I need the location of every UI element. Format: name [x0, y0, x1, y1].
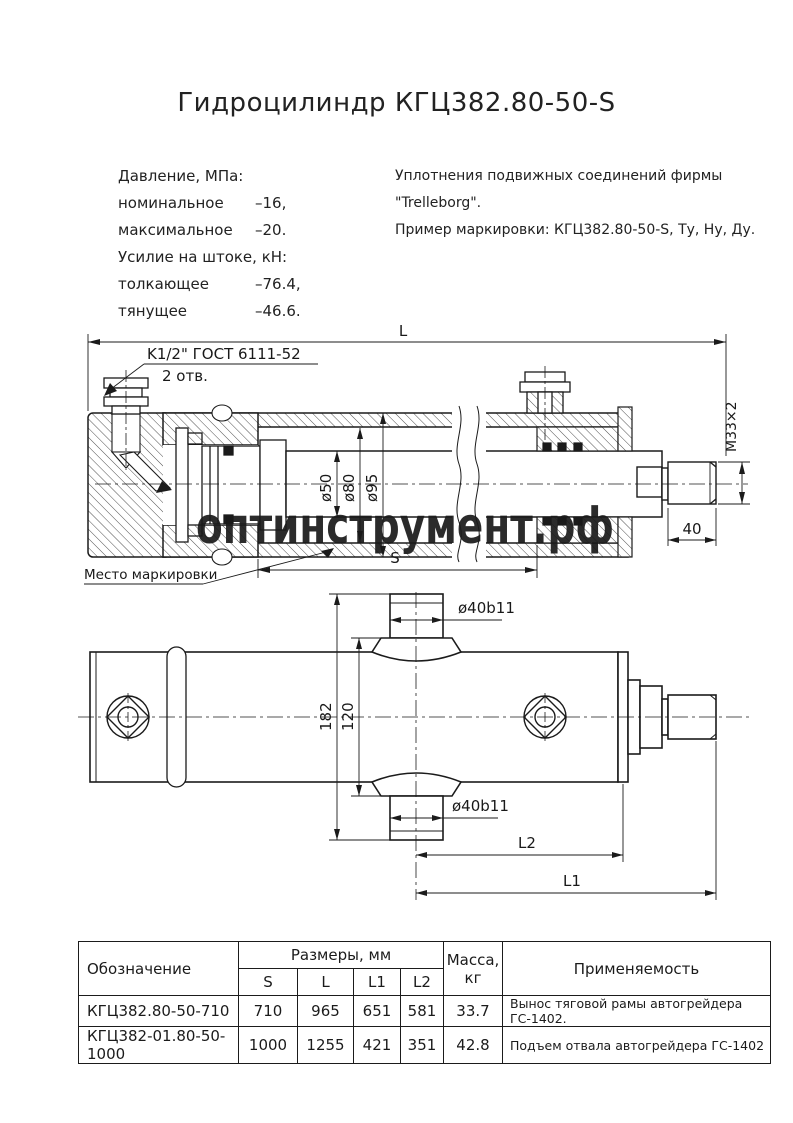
cell-s: 1000: [239, 1027, 298, 1064]
col-header-S: S: [239, 969, 298, 996]
cell-l: 965: [298, 996, 354, 1027]
col-header-mass: Масса, кг: [444, 942, 503, 996]
dim-label-thread: М33×2: [724, 401, 740, 452]
drawing-outline-view: ø40b11 ø40b11 182 12: [78, 592, 752, 900]
datasheet-page: Гидроцилиндр КГЦ382.80-50-S Давление, МП…: [0, 0, 793, 1123]
col-header-L2: L2: [401, 969, 444, 996]
table-row: КГЦ382-01.80-50-1000 1000 1255 421 351 4…: [79, 1027, 771, 1064]
cell-designation: КГЦ382-01.80-50-1000: [79, 1027, 239, 1064]
cell-l: 1255: [298, 1027, 354, 1064]
col-header-dimensions: Размеры, мм: [239, 942, 444, 969]
port-holes-label: 2 отв.: [162, 367, 208, 385]
col-header-L1: L1: [354, 969, 401, 996]
col-header-L: L: [298, 969, 354, 996]
trunnion-bottom: [372, 773, 461, 840]
dim-label-L1: L1: [563, 872, 581, 890]
cell-mass: 33.7: [444, 996, 503, 1027]
cell-application: Вынос тяговой рамы автогрейдера ГС-1402.: [503, 996, 771, 1027]
dim-label-L2: L2: [518, 834, 536, 852]
cell-l1: 651: [354, 996, 401, 1027]
dim-label-182: 182: [317, 702, 335, 731]
cell-l2: 351: [401, 1027, 444, 1064]
marking-place-label: Место маркировки: [84, 567, 217, 583]
cell-l2: 581: [401, 996, 444, 1027]
trunnion-top: [372, 594, 461, 661]
size-table: Обозначение Размеры, мм Масса, кг Примен…: [78, 941, 771, 1064]
cell-mass: 42.8: [444, 1027, 503, 1064]
col-header-designation: Обозначение: [79, 942, 239, 996]
cell-s: 710: [239, 996, 298, 1027]
dim-label-120: 120: [339, 702, 357, 731]
cell-l1: 421: [354, 1027, 401, 1064]
dim-label-pin-bottom: ø40b11: [452, 797, 509, 815]
dim-thread: [718, 462, 750, 504]
table-row: КГЦ382.80-50-710 710 965 651 581 33.7 Вы…: [79, 996, 771, 1027]
col-header-application: Применяемость: [503, 942, 771, 996]
dim-label-length: L: [399, 322, 408, 340]
port-spec-label: K1/2" ГОСТ 6111-52: [147, 345, 301, 363]
dim-label-40: 40: [682, 520, 701, 538]
watermark: оптинструмент.рф: [196, 497, 614, 555]
dim-label-pin-top: ø40b11: [458, 599, 515, 617]
cell-designation: КГЦ382.80-50-710: [79, 996, 239, 1027]
cell-application: Подъем отвала автогрейдера ГС-1402: [503, 1027, 771, 1064]
